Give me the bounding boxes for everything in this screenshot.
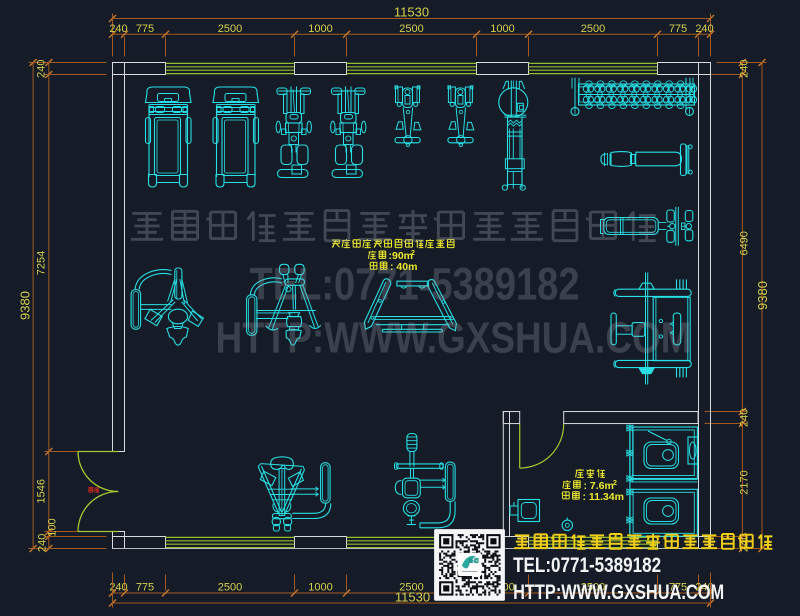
svg-text:11530: 11530 [395,590,430,605]
svg-text:HTTP:WWW.GXSHUA.COM: HTTP:WWW.GXSHUA.COM [216,314,692,363]
svg-text:240: 240 [36,60,48,78]
svg-text:: 7.6m: : 7.6m [584,480,614,492]
svg-text:240: 240 [37,534,49,552]
svg-text:2: 2 [411,250,415,257]
svg-text:2170: 2170 [739,470,751,494]
svg-text:2500: 2500 [581,23,605,35]
svg-text:TEL:0771-5389182: TEL:0771-5389182 [250,259,580,310]
svg-text:240: 240 [739,409,751,427]
svg-text:1000: 1000 [308,23,332,35]
svg-text:9380: 9380 [755,281,770,310]
svg-text:2: 2 [613,480,617,487]
svg-text:2500: 2500 [218,582,242,594]
svg-text:6490: 6490 [739,231,751,255]
svg-text:240: 240 [739,60,751,78]
svg-text:7254: 7254 [36,251,48,275]
svg-text:: 11.34m: : 11.34m [583,491,624,503]
svg-text:HTTP:WWW.GXSHUA.COM: HTTP:WWW.GXSHUA.COM [513,581,724,604]
svg-text:9380: 9380 [18,291,33,320]
svg-text:240: 240 [109,23,127,35]
svg-text:2500: 2500 [399,23,423,35]
svg-text:1000: 1000 [308,582,332,594]
svg-text:775: 775 [136,23,154,35]
svg-text:2500: 2500 [218,23,242,35]
svg-text:775: 775 [669,23,687,35]
svg-text:1546: 1546 [36,479,48,503]
svg-text:240: 240 [695,23,713,35]
svg-text:TEL:0771-5389182: TEL:0771-5389182 [513,554,661,577]
svg-text:1000: 1000 [490,23,514,35]
svg-text:11530: 11530 [394,5,429,20]
svg-text:775: 775 [136,582,154,594]
